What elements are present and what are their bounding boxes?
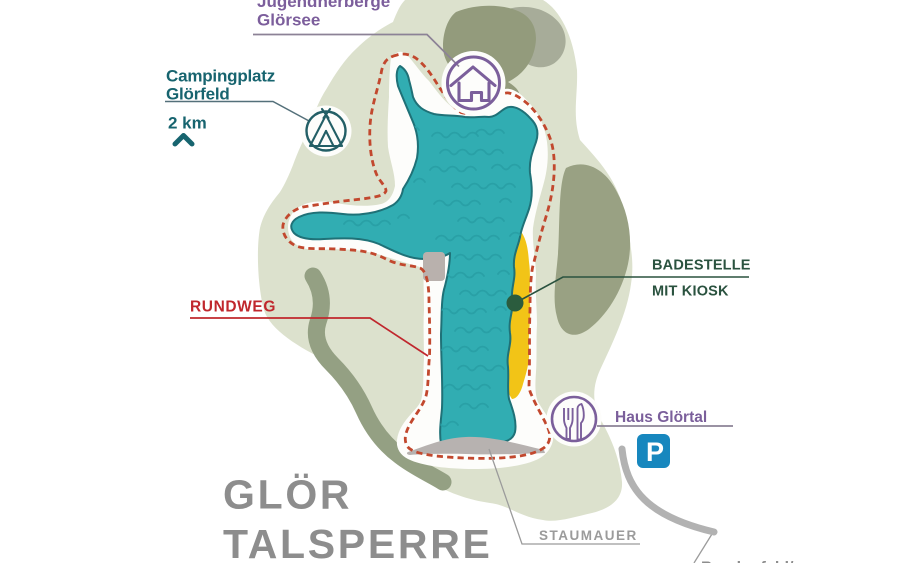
- svg-text:2 km: 2 km: [168, 114, 207, 133]
- svg-text:P: P: [646, 437, 664, 467]
- svg-text:Campingplatz: Campingplatz: [166, 67, 275, 86]
- svg-text:Glörsee: Glörsee: [257, 11, 320, 30]
- svg-text:TALSPERRE: TALSPERRE: [223, 521, 493, 563]
- svg-text:STAUMAUER: STAUMAUER: [539, 528, 638, 543]
- svg-text:RUNDWEG: RUNDWEG: [190, 299, 276, 316]
- svg-text:BADESTELLE: BADESTELLE: [652, 258, 751, 274]
- svg-text:Glörfeld: Glörfeld: [166, 85, 230, 104]
- svg-text:GLÖR: GLÖR: [223, 472, 352, 518]
- svg-text:Jugendherberge: Jugendherberge: [257, 0, 390, 11]
- svg-text:MIT KIOSK: MIT KIOSK: [652, 284, 729, 300]
- svg-text:Breckerfeld/: Breckerfeld/: [701, 560, 794, 563]
- svg-text:Haus Glörtal: Haus Glörtal: [615, 409, 707, 426]
